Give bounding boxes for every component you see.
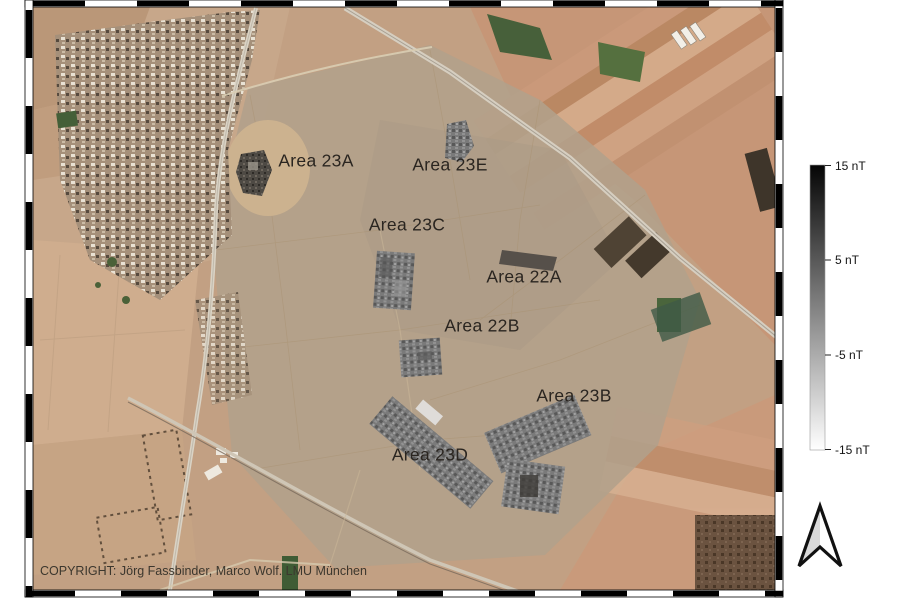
satellite-basemap: [33, 0, 813, 596]
colorbar-gradient: [810, 165, 825, 450]
area-label-23a: Area 23A: [278, 151, 353, 172]
colorbar-tick-label-5: 5 nT: [835, 253, 859, 267]
colorbar-ticks: [825, 166, 831, 450]
satellite-map-figure: [0, 0, 900, 600]
copyright-text: COPYRIGHT: Jörg Fassbinder, Marco Wolf. …: [40, 564, 367, 578]
area-label-22a: Area 22A: [486, 267, 561, 288]
colorbar-tick-label-neg15: -15 nT: [835, 443, 870, 457]
figure-canvas: Area 23A Area 23E Area 23C Area 22A Area…: [0, 0, 900, 600]
magnetometry-patch-23c: [373, 251, 415, 311]
area-label-22b: Area 22B: [444, 316, 519, 337]
orchard-field: [695, 515, 775, 593]
area-label-23c: Area 23C: [369, 215, 445, 236]
area-label-23d: Area 23D: [392, 445, 468, 466]
north-arrow-icon: [799, 506, 841, 566]
colorbar: [810, 165, 831, 450]
colorbar-tick-label-neg5: -5 nT: [835, 348, 863, 362]
area-label-23b: Area 23B: [536, 386, 611, 407]
colorbar-tick-label-15: 15 nT: [835, 159, 866, 173]
magnetometry-patch-22b: [399, 338, 442, 378]
area-label-23e: Area 23E: [412, 155, 487, 176]
